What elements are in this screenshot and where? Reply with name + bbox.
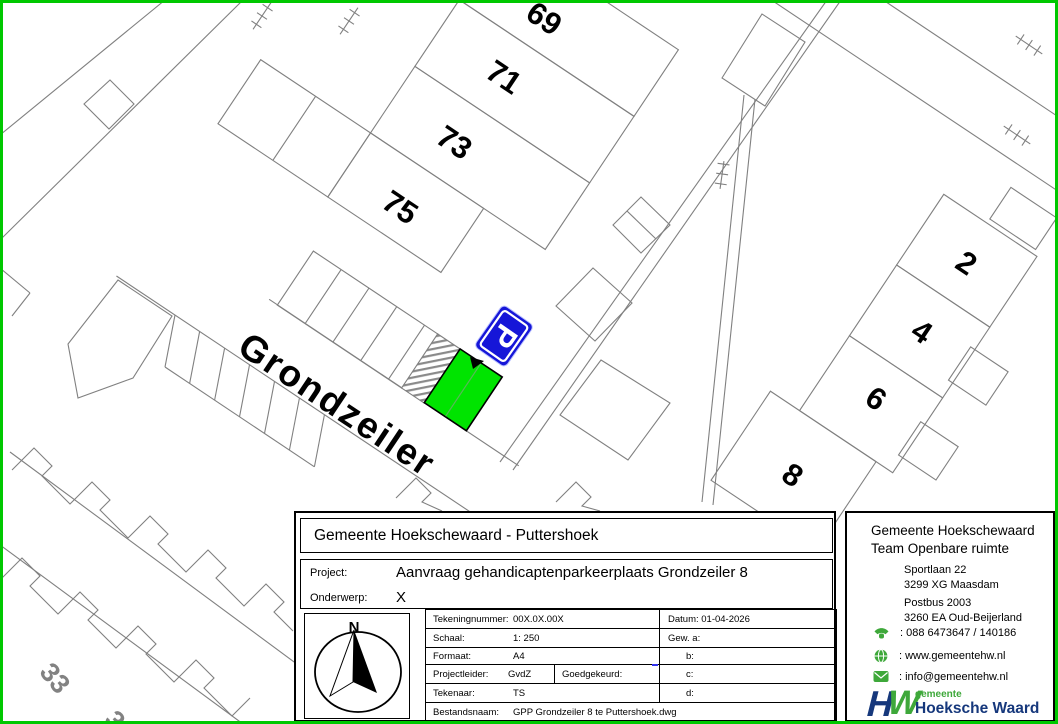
- globe-icon: [873, 648, 889, 664]
- bestandsnaam-value: GPP Grondzeiler 8 te Puttershoek.dwg: [513, 707, 677, 718]
- house-number: 6: [859, 379, 893, 418]
- formaat-label: Formaat:: [426, 651, 513, 662]
- address-postbus: Postbus 2003: [904, 596, 1022, 611]
- house-number: 71: [480, 53, 528, 101]
- phone-icon: [873, 626, 890, 640]
- map-street-lines-topleft: [0, 0, 243, 316]
- gew-d-field: d:: [660, 688, 836, 699]
- table-row: Bestandsnaam: GPP Grondzeiler 8 te Putte…: [426, 703, 836, 721]
- tekeningnummer-label: Tekeningnummer:: [426, 614, 513, 625]
- house-number: 4: [905, 312, 939, 351]
- drawing-title: Gemeente Hoekschewaard - Puttershoek: [300, 518, 833, 553]
- drawing-canvas: 69 71 73 75 2 4 6 8 Grondzeiler 33 3 P G…: [0, 0, 1058, 724]
- logo-gemeente-text: gemeente: [915, 689, 962, 700]
- projectleider-value: GvdZ: [508, 669, 531, 680]
- schaal-value: 1: 250: [513, 633, 539, 644]
- house-number: 2: [950, 244, 984, 283]
- house-number: 8: [776, 456, 810, 495]
- project-value: Aanvraag gehandicaptenparkeerplaats Gron…: [396, 564, 748, 581]
- compass-needle-filled: [353, 630, 377, 693]
- email-address: : info@gemeentehw.nl: [899, 671, 1008, 683]
- datum-field: Datum: 01-04-2026: [660, 614, 836, 625]
- drawing-title-text: Gemeente Hoekschewaard - Puttershoek: [314, 527, 598, 545]
- address-city: 3299 XG Maasdam: [904, 578, 1022, 593]
- table-row: Schaal: 1: 250 Gew. a:: [426, 629, 836, 648]
- table-row: Projectleider: GvdZ Goedgekeurd: c:: [426, 665, 836, 684]
- house-number: 75: [376, 183, 424, 231]
- subject-label: Onderwerp:: [301, 592, 396, 604]
- address-postcity: 3260 EA Oud-Beijerland: [904, 611, 1022, 626]
- table-row: Tekenaar: TS d:: [426, 684, 836, 703]
- schaal-label: Schaal:: [426, 633, 513, 644]
- municipality-logo: H W gemeente Hoeksche Waard: [859, 683, 1049, 724]
- email-icon: [873, 670, 889, 683]
- map-road-lines-right: [500, 0, 841, 505]
- gew-b-field: b:: [660, 651, 836, 662]
- north-arrow: N: [304, 613, 410, 719]
- title-block: Gemeente Hoekschewaard - Puttershoek Pro…: [294, 511, 836, 722]
- tekeningnummer-value: 00X.0X.00X: [513, 614, 564, 625]
- tekenaar-value: TS: [513, 688, 525, 699]
- org-info-panel: Gemeente Hoekschewaard Team Openbare rui…: [845, 511, 1055, 722]
- goedgekeurd-label: Goedgekeurd:: [555, 669, 622, 680]
- project-box: Project: Aanvraag gehandicaptenparkeerpl…: [300, 559, 833, 609]
- house-number-gray-partial: 3: [99, 705, 132, 724]
- website-url: : www.gemeentehw.nl: [899, 650, 1005, 662]
- logo-name-text: Hoeksche Waard: [915, 700, 1039, 717]
- street-label: Grondzeiler: [231, 324, 443, 484]
- tekenaar-label: Tekenaar:: [426, 688, 513, 699]
- phone-number: : 088 6473647 / 140186: [900, 627, 1016, 639]
- cad-artifact: [652, 664, 658, 666]
- parking-sign: P: [474, 304, 534, 368]
- gew-c-field: c:: [660, 669, 836, 680]
- projectleider-label: Projectleider:: [426, 669, 508, 680]
- gew-a-field: Gew. a:: [660, 633, 836, 644]
- address-street: Sportlaan 22: [904, 563, 1022, 578]
- house-number: 69: [520, 0, 568, 43]
- project-label: Project:: [301, 567, 396, 579]
- table-row: Formaat: A4 b:: [426, 648, 836, 665]
- subject-value: X: [396, 589, 406, 606]
- org-name: Gemeente Hoekschewaard: [871, 522, 1035, 540]
- table-row: Tekeningnummer: 00X.0X.00X Datum: 01-04-…: [426, 610, 836, 629]
- formaat-value: A4: [513, 651, 525, 662]
- bestandsnaam-label: Bestandsnaam:: [426, 707, 513, 718]
- house-number: 73: [430, 118, 478, 166]
- org-team: Team Openbare ruimte: [871, 540, 1035, 558]
- drawing-info-table: Tekeningnummer: 00X.0X.00X Datum: 01-04-…: [425, 609, 837, 722]
- house-number-gray: 33: [34, 657, 76, 699]
